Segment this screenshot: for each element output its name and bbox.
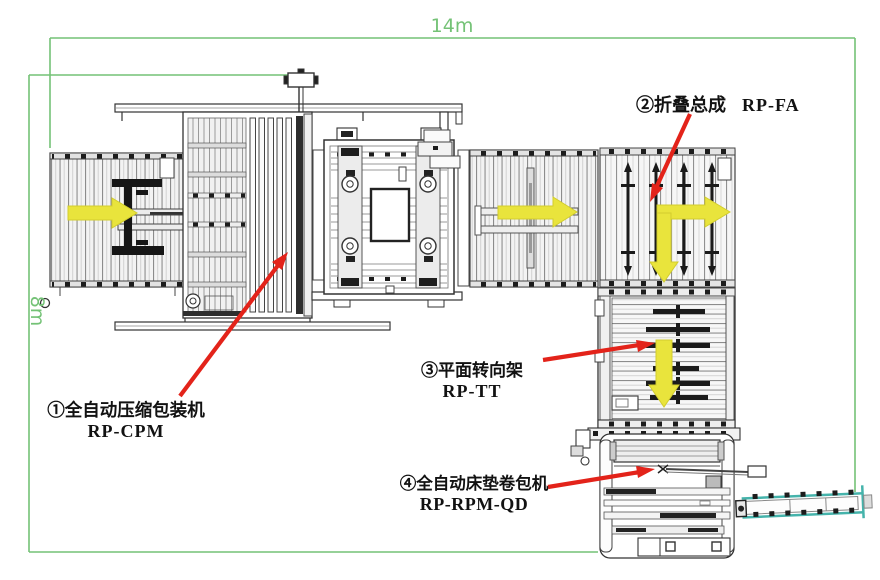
label-machine-2-folding-assembly: ②折叠总成RP-FA — [636, 91, 800, 117]
machine-1-name: ①全自动压缩包装机 — [38, 400, 214, 421]
machine-4-name: ④全自动床垫卷包机 — [390, 473, 558, 494]
dimension-label-8m: 8m — [26, 288, 48, 334]
roll-packer-drawing — [571, 428, 766, 558]
machine-4-code: RP-RPM-QD — [390, 494, 558, 515]
machine-2-name: ②折叠总成 — [636, 95, 726, 115]
layout-diagram: 14m 8m ①全自动压缩包装机 RP-CPM ②折叠总成RP-FA ③平面转向… — [0, 0, 880, 580]
press-machine-drawing — [313, 128, 469, 294]
machine-3-code: RP-TT — [402, 381, 542, 401]
label-machine-3-turntable: ③平面转向架 RP-TT — [402, 361, 542, 401]
label-machine-1-compression-packer: ①全自动压缩包装机 RP-CPM — [38, 400, 214, 442]
compression-packer-drawing — [183, 112, 312, 318]
machine-2-code: RP-FA — [742, 95, 800, 115]
machine-3-name: ③平面转向架 — [402, 361, 542, 381]
machine-1-code: RP-CPM — [38, 421, 214, 442]
outfeed-conveyor-drawing — [735, 485, 872, 524]
label-machine-4-roll-packer: ④全自动床垫卷包机 RP-RPM-QD — [390, 473, 558, 515]
dimension-label-14m: 14m — [420, 15, 484, 37]
